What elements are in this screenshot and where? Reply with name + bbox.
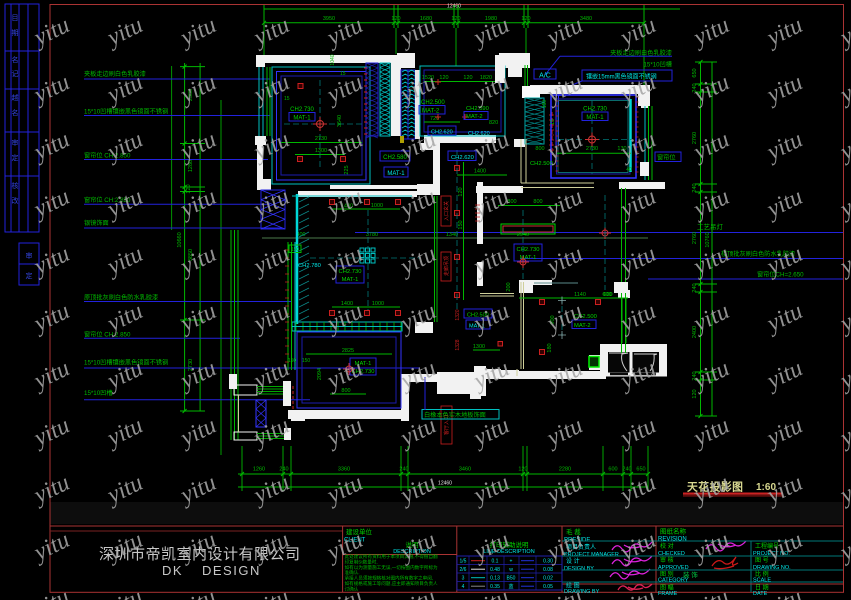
svg-text:225: 225 [344, 165, 350, 174]
svg-text:12460: 12460 [438, 481, 452, 487]
svg-text:3640: 3640 [337, 115, 343, 127]
svg-text:3: 3 [462, 576, 465, 582]
svg-text:审: 审 [12, 138, 19, 147]
svg-text:240: 240 [692, 283, 698, 292]
svg-text:装 饰: 装 饰 [683, 570, 698, 579]
svg-text:120: 120 [439, 75, 448, 81]
svg-text:2825: 2825 [342, 348, 354, 354]
svg-text:2094: 2094 [317, 368, 323, 380]
svg-text:MAT-2: MAT-2 [466, 114, 483, 120]
svg-text:600: 600 [608, 467, 617, 473]
svg-text:定: 定 [26, 271, 33, 280]
svg-text:期: 期 [12, 29, 19, 37]
svg-text:窗帘位: 窗帘位 [657, 154, 676, 162]
svg-text:2280: 2280 [559, 467, 571, 473]
svg-text:原顶批灰刷白色防水乳胶漆: 原顶批灰刷白色防水乳胶漆 [84, 294, 158, 302]
svg-text:CH2.620: CH2.620 [431, 130, 453, 136]
svg-text:w: w [509, 567, 513, 573]
svg-text:改: 改 [12, 196, 19, 205]
svg-text:目: 目 [12, 14, 19, 22]
svg-text:1040: 1040 [330, 54, 336, 65]
svg-text:图纸名称: 图纸名称 [660, 527, 687, 536]
svg-text:3360: 3360 [338, 467, 350, 473]
svg-text:240: 240 [622, 467, 631, 473]
svg-text:银镜饰面: 银镜饰面 [84, 219, 109, 227]
svg-text:REVISION: REVISION [658, 537, 687, 543]
svg-text:图 号: 图 号 [755, 557, 769, 564]
svg-text:审 核: 审 核 [660, 556, 674, 564]
svg-text:240: 240 [399, 467, 408, 473]
svg-text:1140: 1140 [574, 292, 586, 298]
svg-text:DATE: DATE [753, 591, 768, 597]
svg-text:600: 600 [603, 292, 612, 298]
svg-text:120: 120 [692, 389, 698, 398]
svg-text:240: 240 [692, 183, 698, 192]
svg-text:走廊吊顶: 走廊吊顶 [443, 256, 450, 276]
svg-text:40: 40 [626, 167, 632, 173]
svg-text:MAT-1: MAT-1 [342, 277, 359, 283]
svg-text:0.08: 0.08 [543, 567, 553, 573]
svg-text:DESIGN BY: DESIGN BY [564, 566, 594, 572]
svg-text:白橡本色实木地板饰面: 白橡本色实木地板饰面 [424, 411, 486, 419]
svg-text:名: 名 [12, 108, 19, 117]
svg-text:记: 记 [12, 70, 19, 78]
svg-text:蓝: 蓝 [508, 583, 513, 590]
svg-text:3460: 3460 [459, 467, 471, 473]
svg-text:2/6: 2/6 [460, 567, 467, 573]
svg-text:150: 150 [458, 220, 464, 229]
svg-text:120: 120 [463, 75, 472, 81]
svg-text:2760: 2760 [692, 232, 698, 244]
svg-text:1328: 1328 [455, 339, 461, 350]
svg-text:800: 800 [533, 199, 542, 205]
svg-text:15*10凹槽镶嵌黑色镜面不锈钢: 15*10凹槽镶嵌黑色镜面不锈钢 [84, 108, 168, 116]
svg-text:2730: 2730 [586, 146, 598, 152]
svg-text:120: 120 [518, 467, 527, 473]
svg-text:CH2.500: CH2.500 [530, 161, 553, 167]
svg-text:校 对: 校 对 [660, 542, 674, 550]
svg-text:SCALE: SCALE [753, 578, 771, 584]
svg-text:180: 180 [547, 343, 553, 352]
svg-text:15: 15 [550, 119, 556, 125]
svg-text:1000: 1000 [371, 203, 383, 209]
svg-text:CH2.780: CH2.780 [298, 263, 321, 269]
svg-text:0.48: 0.48 [490, 567, 500, 573]
svg-text:10660: 10660 [177, 232, 183, 247]
svg-text:DK: DK [162, 563, 183, 578]
svg-text:1340: 1340 [446, 232, 458, 238]
svg-text:A/C: A/C [539, 73, 551, 80]
svg-text:150: 150 [288, 358, 297, 364]
svg-text:800: 800 [535, 146, 544, 152]
svg-text:MAT-2: MAT-2 [422, 109, 440, 115]
svg-text:核: 核 [12, 181, 19, 190]
svg-text:10760: 10760 [705, 232, 711, 247]
svg-text:MAT-1: MAT-1 [586, 115, 604, 121]
svg-text:650: 650 [692, 68, 698, 77]
svg-text:1260: 1260 [253, 467, 265, 473]
svg-text:入口玄关: 入口玄关 [443, 201, 450, 221]
svg-text:150: 150 [542, 100, 548, 109]
svg-text:4: 4 [462, 584, 465, 590]
svg-text:150: 150 [302, 358, 311, 364]
svg-text:CH2.620: CH2.620 [451, 155, 474, 161]
svg-text:越: 越 [12, 93, 19, 102]
svg-text:MAT-1: MAT-1 [387, 171, 405, 177]
svg-text:1/5: 1/5 [460, 559, 467, 565]
svg-text:FRAME: FRAME [658, 591, 678, 597]
svg-text:15*10凹槽: 15*10凹槽 [84, 389, 113, 397]
svg-text:200: 200 [506, 282, 512, 291]
svg-text:3480: 3480 [580, 16, 592, 22]
svg-text:+: + [510, 559, 513, 565]
svg-text:15*10凹槽: 15*10凹槽 [643, 61, 672, 69]
svg-text:名: 名 [12, 55, 19, 64]
svg-text:1300: 1300 [315, 148, 327, 154]
svg-text:0.13: 0.13 [490, 576, 500, 582]
svg-text:820: 820 [489, 120, 498, 126]
svg-text:B50: B50 [507, 576, 516, 582]
svg-text:定: 定 [12, 153, 19, 162]
svg-text:CH2.730: CH2.730 [517, 247, 540, 253]
svg-text:MAT-1: MAT-1 [293, 116, 311, 122]
svg-text:3950: 3950 [323, 16, 335, 22]
svg-text:0.02: 0.02 [543, 576, 553, 582]
svg-text:MAT-1: MAT-1 [520, 255, 537, 261]
svg-text:1400: 1400 [474, 169, 486, 175]
svg-text:1300: 1300 [473, 344, 485, 350]
svg-text:1320: 1320 [455, 309, 461, 320]
svg-text:1000: 1000 [372, 301, 384, 307]
svg-text:DESIGN: DESIGN [202, 563, 261, 578]
svg-text:0.05: 0.05 [543, 584, 553, 590]
